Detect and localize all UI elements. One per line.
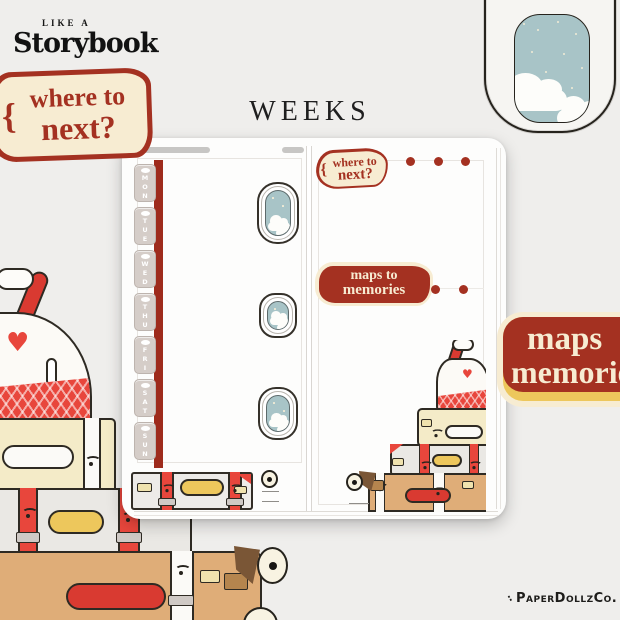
tab-hole xyxy=(141,168,150,173)
suitcase-handle xyxy=(180,479,224,496)
travel-bag: ♥ xyxy=(436,358,486,412)
watermark-text: PaperDollzCo. xyxy=(516,591,617,606)
suitcase-tan-large xyxy=(0,551,262,620)
sticker-body: maps memories xyxy=(503,317,620,392)
sticker-text: maps to xyxy=(319,269,430,284)
porthole-sticker xyxy=(259,293,297,338)
sticker-text: next? xyxy=(9,109,148,146)
window-sky xyxy=(514,14,590,123)
luggage-tag xyxy=(421,419,432,427)
brace-glyph: { xyxy=(1,95,17,137)
tab-hole xyxy=(141,254,150,259)
bag-pom xyxy=(0,268,34,290)
day-tab-tue: TUE xyxy=(134,207,156,245)
suitcase-handle xyxy=(66,583,166,610)
travel-bag: ♥ xyxy=(0,312,92,434)
luggage-tag xyxy=(137,483,152,492)
sticker-maps-to-memories-large: maps memories xyxy=(497,312,620,407)
sticker-body: { where to next? xyxy=(0,72,148,157)
brand-name: Storybook xyxy=(13,28,173,59)
sticker-body: maps to memories xyxy=(319,266,430,303)
red-corner xyxy=(390,444,403,454)
day-tab-sat: SAT xyxy=(134,379,156,417)
day-tab-sun: SUN xyxy=(134,422,156,460)
buckle-band xyxy=(116,532,142,543)
buckle-band xyxy=(16,532,40,543)
sketch-dash xyxy=(262,491,279,492)
buckle-icon xyxy=(22,508,34,520)
day-tab-label: FRI xyxy=(141,346,149,373)
day-tab-fri: FRI xyxy=(134,336,156,374)
buckle-band xyxy=(158,498,176,506)
stars xyxy=(273,402,275,404)
sticker-product-image: ♥ xyxy=(0,0,620,620)
bag-pom xyxy=(452,340,474,351)
planner-mockup: MON TUE WED THU FRI SAT SUN xyxy=(122,138,506,519)
buckle-icon xyxy=(469,461,479,471)
suitcase-cream xyxy=(417,408,486,447)
luggage-strap xyxy=(18,488,38,558)
sticker-maps-to-memories-small: maps to memories xyxy=(315,262,433,306)
sticker-text: memories xyxy=(319,283,430,299)
heart-icon: ♥ xyxy=(6,330,29,356)
brand-logo: LIKE A Storybook xyxy=(13,18,173,59)
buckle-icon xyxy=(162,484,172,494)
luggage-tag xyxy=(392,458,404,466)
luggage-tag xyxy=(200,570,220,583)
wheel-dot xyxy=(267,477,272,482)
porthole-sticker xyxy=(257,182,299,244)
tab-hole xyxy=(141,383,150,388)
luggage-strap xyxy=(170,551,194,620)
suitcase-stack-sticker: ♥ xyxy=(346,340,486,512)
wheel-dot xyxy=(269,562,277,570)
sticker-body: { where to next? xyxy=(318,150,387,187)
buckle-icon xyxy=(175,565,187,577)
red-dot-row xyxy=(406,157,470,166)
wheel-dot xyxy=(352,480,357,485)
page-spine xyxy=(306,146,312,511)
day-tab-label: TUE xyxy=(141,217,149,244)
brand-tagline: LIKE A xyxy=(42,18,173,28)
page-title: WEEKS xyxy=(200,96,420,128)
day-tab-thu: THU xyxy=(134,293,156,331)
suitcase-tan xyxy=(368,473,486,512)
day-tab-label: SUN xyxy=(141,432,149,459)
buckle-icon xyxy=(85,456,97,468)
page-stack-edge xyxy=(496,148,497,509)
tab-hole xyxy=(141,340,150,345)
tab-hole xyxy=(141,297,150,302)
page-stack-edge xyxy=(134,515,498,516)
tab-hole xyxy=(141,426,150,431)
day-tab-label: MON xyxy=(141,174,149,201)
cloud-icon xyxy=(276,229,291,236)
trolley-wheel-icon xyxy=(261,470,278,488)
suitcase-handle xyxy=(2,445,74,469)
luggage-tag xyxy=(462,481,474,489)
day-tab-label: WED xyxy=(141,260,149,287)
porthole-sticker xyxy=(258,387,298,440)
suitcase-handle xyxy=(48,510,104,534)
sticker-where-to-next-small: { where to next? xyxy=(315,147,389,190)
buckle-band xyxy=(168,595,194,606)
buckle-icon xyxy=(431,429,441,439)
suitcase-handle xyxy=(445,425,483,439)
gray-bar xyxy=(282,147,304,153)
airplane-window-illustration xyxy=(484,0,616,133)
heart-icon: ♥ xyxy=(462,368,473,380)
stars xyxy=(523,23,525,25)
sticker-yellow-layer: maps memories xyxy=(503,317,620,401)
day-tab-label: THU xyxy=(141,303,149,330)
buckle-icon xyxy=(433,487,443,497)
sketch-dash xyxy=(349,503,369,504)
brace-glyph: { xyxy=(320,161,327,179)
brand-watermark: : PaperDollzCo. : xyxy=(508,591,620,606)
red-dot-row xyxy=(431,285,468,294)
suitcase-handle xyxy=(432,454,462,467)
buckle-icon xyxy=(230,484,240,494)
sticker-text: maps xyxy=(527,323,620,356)
cloud-icon xyxy=(514,89,567,111)
trolley-wheel-icon xyxy=(346,473,363,491)
suitcase-cream-large xyxy=(0,418,116,495)
porthole-sky xyxy=(265,190,291,236)
porthole-sky xyxy=(267,301,289,330)
day-tab-wed: WED xyxy=(134,250,156,288)
day-tab-label: SAT xyxy=(141,389,149,416)
stars xyxy=(274,308,276,310)
tab-hole xyxy=(141,211,150,216)
sticker-text: memories xyxy=(511,356,620,388)
stars xyxy=(272,197,274,199)
sticker-where-to-next-large: { where to next? xyxy=(0,67,154,163)
trolley-wheel-icon xyxy=(257,547,288,584)
sketch-dash xyxy=(262,501,279,502)
day-tab-mon: MON xyxy=(134,164,156,202)
cloud-icon xyxy=(557,109,590,123)
buckle-icon xyxy=(420,461,430,471)
buckle-band xyxy=(226,498,244,506)
suitcase-washi-strip xyxy=(131,472,253,510)
porthole-sky xyxy=(266,395,290,432)
